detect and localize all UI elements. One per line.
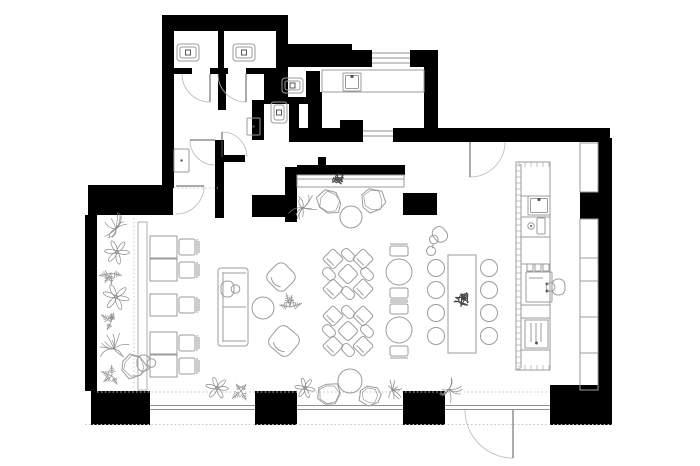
wall-fixture bbox=[174, 149, 189, 172]
window-chair bbox=[318, 384, 341, 405]
door-main-entrance bbox=[465, 410, 513, 458]
stool bbox=[481, 282, 498, 299]
stool bbox=[428, 282, 445, 299]
table-for-one bbox=[150, 236, 199, 258]
entry-frame bbox=[445, 406, 550, 410]
plant bbox=[206, 377, 229, 399]
walls-layer bbox=[85, 15, 612, 425]
table-for-one bbox=[150, 259, 199, 281]
toilet bbox=[177, 44, 199, 61]
window-bottom-left bbox=[150, 406, 255, 410]
plant bbox=[388, 380, 402, 400]
lounge-chair bbox=[362, 189, 386, 213]
wall-shelf bbox=[580, 317, 598, 353]
plant bbox=[98, 270, 121, 284]
door-back-room bbox=[190, 140, 215, 165]
banquette-bench bbox=[297, 175, 404, 187]
bar-sink bbox=[528, 196, 550, 215]
table-for-one bbox=[150, 332, 199, 354]
four-seat-table bbox=[321, 247, 375, 301]
four-seat-table bbox=[321, 304, 375, 358]
bar-tap bbox=[528, 218, 545, 234]
seated-guest bbox=[221, 281, 240, 297]
window-kitchen-top bbox=[372, 53, 410, 63]
under-counter-appliance bbox=[525, 320, 548, 348]
plant bbox=[100, 333, 129, 357]
round-table bbox=[340, 206, 362, 228]
door-vestibule bbox=[222, 132, 247, 157]
plant bbox=[105, 240, 130, 265]
window-bottom-center bbox=[297, 406, 403, 410]
two-seat-table bbox=[386, 302, 412, 358]
coffee-table bbox=[252, 297, 274, 319]
kitchen-counter bbox=[322, 70, 424, 92]
wall-shelf bbox=[580, 219, 598, 258]
plant bbox=[105, 212, 127, 238]
windows-layer bbox=[150, 53, 550, 410]
plant-on-bench bbox=[333, 174, 344, 184]
plant bbox=[103, 284, 130, 310]
armchair bbox=[266, 323, 303, 360]
plant bbox=[279, 293, 302, 309]
table-for-one bbox=[150, 355, 199, 377]
door-hall-to-cafe bbox=[176, 186, 204, 214]
stool bbox=[428, 328, 445, 345]
cafe-floor-plan-drawing bbox=[0, 0, 700, 466]
toilet bbox=[233, 44, 255, 61]
stool bbox=[481, 260, 498, 277]
wall-shelf bbox=[580, 143, 598, 192]
lounge-sofa bbox=[218, 268, 248, 346]
stool bbox=[481, 305, 498, 322]
plant bbox=[101, 313, 115, 330]
wall-shelf bbox=[580, 258, 598, 281]
stool bbox=[481, 328, 498, 345]
plant bbox=[295, 378, 316, 399]
lounge-chair bbox=[316, 190, 340, 214]
wall-shelf bbox=[580, 353, 598, 390]
plant-on-table bbox=[454, 292, 468, 307]
table-for-one bbox=[150, 294, 199, 316]
washbasin bbox=[343, 73, 361, 91]
toilet bbox=[271, 102, 287, 123]
window-chair bbox=[359, 386, 381, 406]
barista bbox=[546, 279, 565, 295]
floor-plan-canvas bbox=[0, 0, 700, 466]
stool bbox=[428, 260, 445, 277]
round-table bbox=[338, 369, 362, 393]
two-seat-table bbox=[386, 244, 412, 300]
wall-shelf bbox=[580, 281, 598, 317]
pass-through-window bbox=[363, 131, 393, 136]
door-wc-stall-1 bbox=[182, 74, 210, 102]
waiter bbox=[418, 224, 452, 257]
door-service bbox=[470, 142, 505, 177]
stool bbox=[428, 305, 445, 322]
plant bbox=[101, 365, 117, 385]
armchair bbox=[264, 260, 298, 294]
lounge-chair bbox=[122, 354, 148, 379]
